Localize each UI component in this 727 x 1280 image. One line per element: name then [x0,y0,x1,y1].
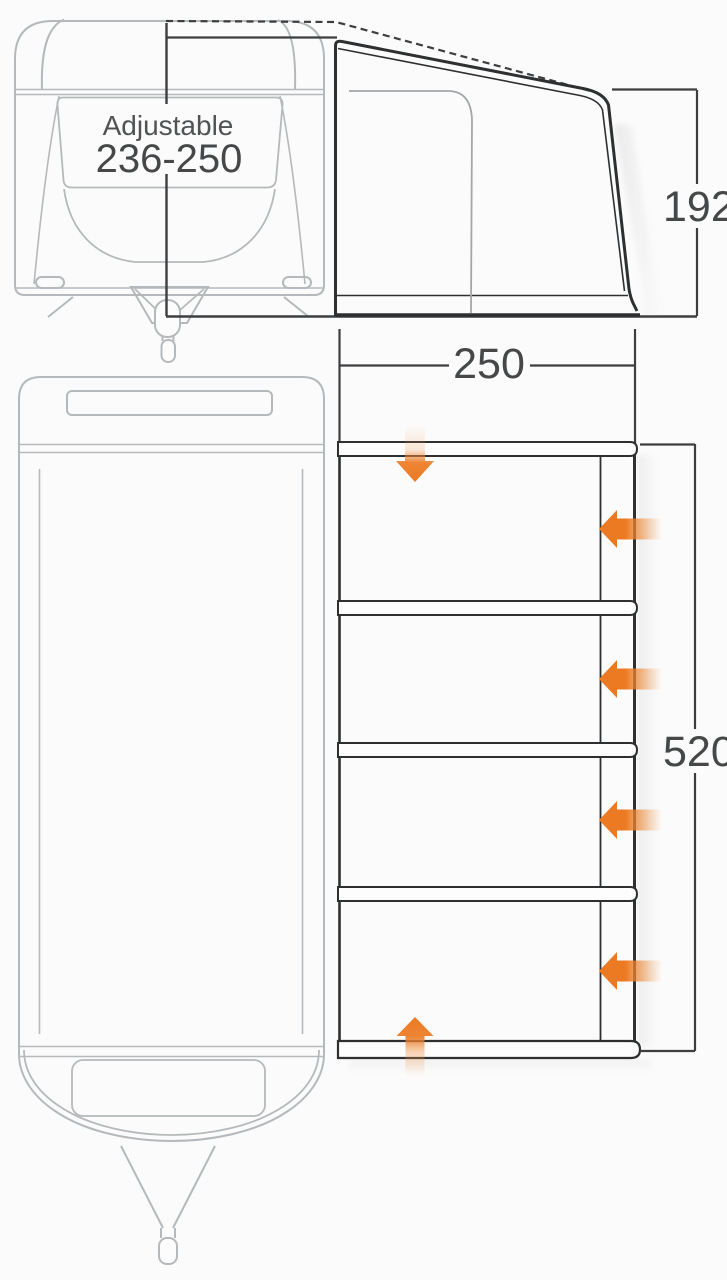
svg-text:250: 250 [453,340,525,388]
svg-text:192: 192 [663,183,727,231]
svg-text:520: 520 [663,728,727,776]
svg-text:236-250: 236-250 [96,137,243,181]
